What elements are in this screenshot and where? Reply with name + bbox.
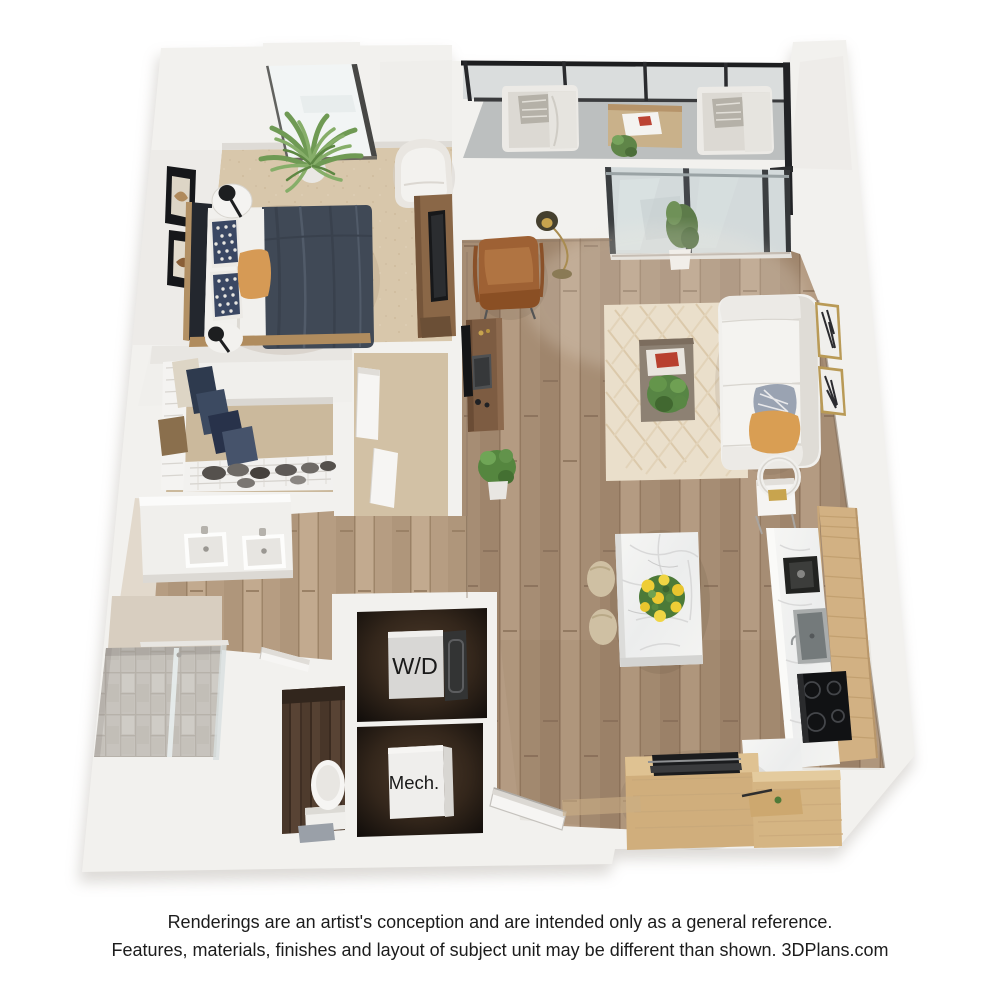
svg-text:Renderings are an artist's con: Renderings are an artist's conception an… <box>168 912 833 932</box>
svg-text:Mech.: Mech. <box>389 772 439 793</box>
svg-text:Features, materials, finishes: Features, materials, finishes and layout… <box>111 940 888 960</box>
svg-text:W/D: W/D <box>392 653 438 679</box>
